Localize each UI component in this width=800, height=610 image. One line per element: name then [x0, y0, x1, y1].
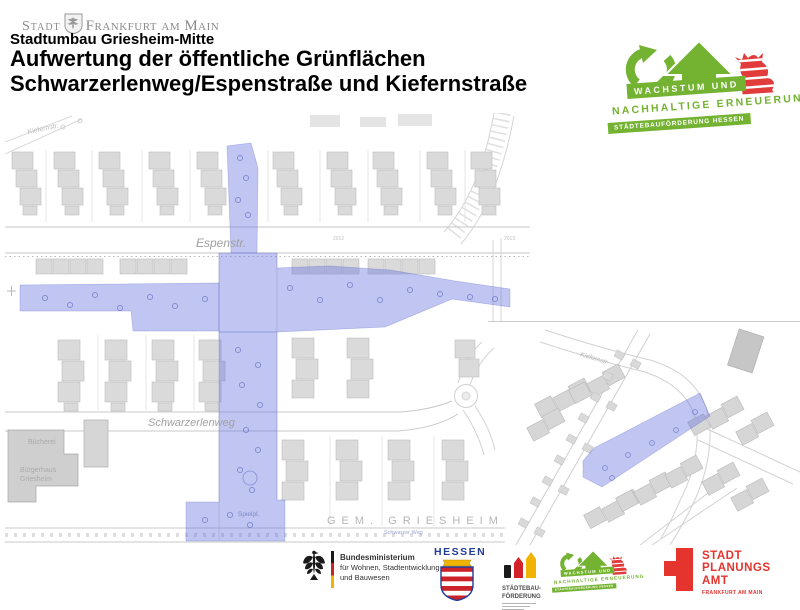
street-label-espenstrasse: Espenstr. [196, 236, 246, 250]
stadtplanungsamt-logo: STADT PLANUNGS AMT FRANKFURT AM MAIN [664, 548, 771, 597]
spa-label-4: FRANKFURT AM MAIN [702, 591, 771, 596]
stadtplanungsamt-glyph-icon [664, 548, 694, 592]
spa-label-3: AMT [702, 575, 771, 587]
page-title-line1: Aufwertung der öffentliche Grünflächen [10, 47, 527, 72]
bund-label-1: Bundesministerium [340, 553, 440, 563]
parcel-number-a: 2012 [333, 236, 344, 242]
bund-label-2: für Wohnen, Stadtentwicklung [340, 563, 440, 573]
main-map: Espenstr. Kiefernstr. Schwarzerlenweg GE… [5, 113, 530, 545]
program-logo-small: WACHSTUM UND NACHHALTIGE ERNEUERUNG STÄD… [549, 545, 637, 597]
parcel-number-b: 2013 [504, 236, 515, 242]
hessen-label: HESSEN [434, 546, 480, 558]
tricolor-bar-icon [331, 551, 334, 588]
staedtebau-fineprint [502, 603, 558, 610]
gemarkung-label: GEM. GRIESHEIM [327, 515, 504, 527]
buergerhaus-label-1: Bürgerhaus [20, 467, 57, 474]
hessen-shield-icon [437, 559, 477, 601]
street-label-schwarzer-weg: Schwarzer Weg [384, 530, 423, 536]
inset-map: Kiefernstr. [505, 322, 800, 545]
spa-label-1: STADT [702, 550, 771, 562]
street-label-schwarzerlenweg: Schwarzerlenweg [148, 417, 236, 429]
buergerhaus-label-2: Griesheim [20, 476, 52, 483]
buecherei-label: Bücherei [28, 439, 56, 446]
hessen-logo: HESSEN [434, 546, 480, 606]
spielplatz-label: Spielpl. [238, 511, 260, 518]
spa-label-2: PLANUNGS [702, 562, 771, 574]
bund-logo: Bundesministerium für Wohnen, Stadtentwi… [301, 549, 440, 588]
page-title: Aufwertung der öffentliche Grünflächen S… [10, 47, 527, 96]
slide: Espenstr. Kiefernstr. Schwarzerlenweg GE… [0, 0, 800, 600]
page-title-line2: Schwarzerlenweg/Espenstraße und Kieferns… [10, 72, 527, 97]
footer: Bundesministerium für Wohnen, Stadtentwi… [0, 545, 800, 600]
buildings-icon [502, 551, 538, 579]
federal-eagle-icon [301, 549, 327, 583]
bund-label-3: und Bauwesen [340, 573, 440, 583]
program-logo: WACHSTUM UND NACHHALTIGE ERNEUERUNG STÄD… [601, 28, 796, 143]
